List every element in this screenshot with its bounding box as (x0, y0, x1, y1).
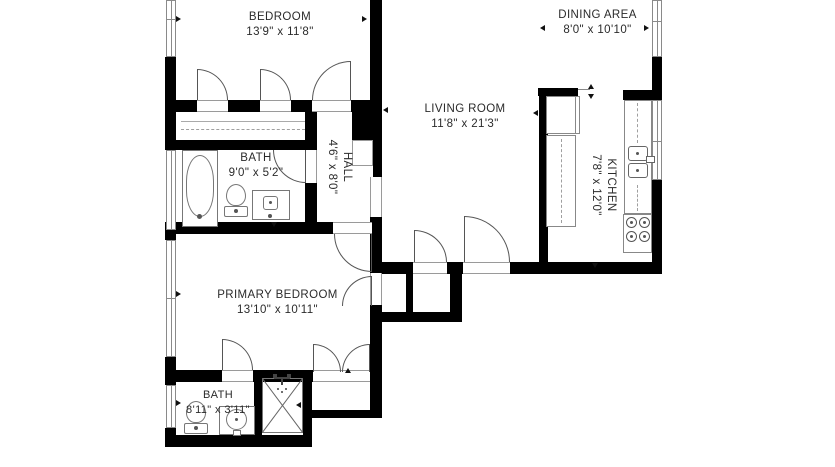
room-label-bath: BATH 9'0" x 5'2" (206, 151, 306, 181)
cased-opening (370, 177, 382, 217)
door-opening (333, 222, 372, 234)
room-label-living-room: LIVING ROOM 11'8" x 21'3" (385, 102, 545, 132)
window-bedroom (166, 0, 176, 57)
shower-spray-dot (285, 388, 287, 390)
stove-burner (626, 217, 637, 228)
shower-valve-right (287, 374, 291, 378)
door-opening (197, 100, 228, 112)
window-bath (166, 150, 176, 230)
dimension-arrow-icon (592, 263, 598, 268)
dimension-arrow-icon (176, 16, 181, 22)
toilet-flush (194, 426, 198, 430)
wall-segment (370, 0, 382, 112)
refrigerator-line (575, 97, 576, 133)
entry-door (464, 216, 510, 262)
vanity-drain (269, 201, 272, 204)
dimension-arrow-icon (271, 222, 277, 227)
room-dims: 13'10" x 10'11" (195, 303, 360, 318)
primary-bedroom-door (334, 234, 372, 272)
wall-segment (228, 100, 260, 112)
closet-rod-line (181, 129, 305, 130)
vanity-faucet (233, 430, 241, 436)
wall-segment (652, 180, 662, 274)
wall-segment (652, 57, 662, 95)
wall-segment (165, 370, 222, 382)
shower-spray-dot (281, 391, 283, 393)
door-opening (222, 370, 253, 382)
room-label-dining-area: DINING AREA 8'0" x 10'10" (530, 8, 665, 38)
dimension-arrow-icon (296, 402, 301, 408)
basin-drain (235, 418, 238, 421)
wall-segment (303, 410, 382, 418)
toilet-icon (226, 184, 246, 206)
room-dims: 11'8" x 21'3" (385, 117, 545, 132)
entry-opening (463, 262, 510, 274)
room-dims: 8'11" x 3'11" (168, 403, 268, 418)
stove-burner (639, 217, 650, 228)
toilet-flush (234, 209, 238, 213)
dimension-arrow-icon (176, 291, 181, 297)
stove-burner (639, 231, 650, 242)
stove-burner (626, 231, 637, 242)
door-opening (312, 100, 351, 112)
room-name: PRIMARY BEDROOM (195, 288, 360, 303)
door-opening (413, 262, 447, 274)
room-name: HALL (339, 122, 354, 212)
counter-dash-line (637, 103, 638, 143)
room-dims: 8'0" x 10'10" (530, 23, 665, 38)
room-name: DINING AREA (530, 8, 665, 23)
sink-faucet (646, 156, 655, 163)
room-dims: 13'9" x 11'8" (195, 25, 365, 40)
room-name: BEDROOM (195, 10, 365, 25)
wall-segment (165, 435, 312, 447)
shower-valve-left (273, 374, 277, 378)
floor-plan: BEDROOM 13'9" x 11'8" DINING AREA 8'0" x… (0, 0, 835, 467)
room-label-bedroom: BEDROOM 13'9" x 11'8" (195, 10, 365, 40)
counter-dash-line (561, 139, 562, 223)
door-opening (305, 150, 317, 183)
wall-segment (165, 100, 197, 112)
room-label-primary-bath: BATH 8'11" x 3'11" (168, 388, 268, 418)
room-dims: 9'0" x 5'2" (206, 166, 306, 181)
dimension-arrow-icon (588, 94, 594, 99)
wall-segment (303, 382, 312, 435)
wall-segment (538, 88, 578, 96)
wall-segment (510, 262, 660, 274)
wall-segment (406, 274, 413, 312)
room-name: BATH (168, 388, 268, 403)
wardrobe-door-left (313, 344, 341, 372)
sink-drain (636, 152, 639, 155)
bedroom-entry-door (312, 61, 351, 100)
counter-edge-line (578, 89, 590, 90)
wall-segment (165, 140, 317, 150)
window-primary-bedroom (166, 240, 176, 357)
room-name: BATH (206, 151, 306, 166)
room-name: LIVING ROOM (385, 102, 545, 117)
dimension-arrow-icon (588, 84, 594, 89)
bedroom-closet-door-right (260, 69, 291, 100)
room-dims: 4'6" x 8'0" (324, 122, 339, 212)
room-label-hall: HALL 4'6" x 8'0" (324, 122, 354, 212)
wall-segment (373, 140, 382, 177)
sink-drain (636, 169, 639, 172)
wall-segment (305, 183, 317, 222)
closet-shelf-line (181, 121, 305, 122)
counter-dash-line (637, 185, 638, 211)
vanity-faucet (268, 214, 272, 218)
wall-segment (165, 112, 176, 140)
shower-head-stem (281, 379, 283, 385)
wall-segment (352, 105, 382, 140)
shower-spray-dot (277, 388, 279, 390)
primary-bath-door (222, 339, 253, 370)
room-dims: 7'8" x 12'0" (588, 130, 603, 240)
door-opening (260, 100, 291, 112)
room-label-primary-bedroom: PRIMARY BEDROOM 13'10" x 10'11" (195, 288, 360, 318)
room-name: KITCHEN (603, 130, 618, 240)
wall-segment (371, 312, 462, 322)
living-closet-door (414, 230, 447, 262)
hall-niche (352, 140, 373, 166)
dimension-arrow-icon (345, 368, 351, 373)
bedroom-closet-door-left (197, 69, 228, 100)
bathtub-faucet (197, 214, 202, 219)
window-kitchen (652, 100, 662, 180)
room-label-kitchen: KITCHEN 7'8" x 12'0" (588, 130, 618, 240)
